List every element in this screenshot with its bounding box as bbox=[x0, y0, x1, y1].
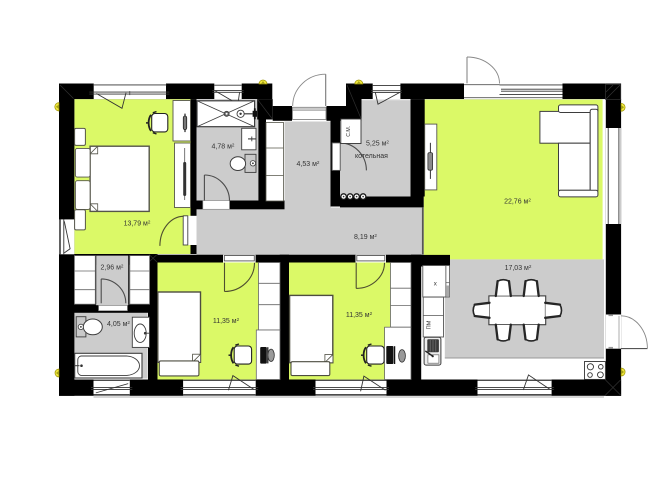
svg-text:5,25 м2: 5,25 м2 bbox=[366, 139, 389, 147]
svg-text:С.М.: С.М. bbox=[346, 126, 352, 137]
svg-text:8,19 м2: 8,19 м2 bbox=[354, 233, 377, 241]
svg-text:4,53 м2: 4,53 м2 bbox=[297, 160, 320, 168]
svg-text:котельная: котельная bbox=[355, 153, 388, 160]
svg-text:11,35 м2: 11,35 м2 bbox=[346, 311, 373, 319]
svg-text:11,35 м2: 11,35 м2 bbox=[213, 317, 240, 325]
svg-text:4,78 м2: 4,78 м2 bbox=[212, 143, 235, 151]
svg-text:22,76 м2: 22,76 м2 bbox=[504, 198, 531, 206]
svg-text:17,03 м2: 17,03 м2 bbox=[505, 264, 532, 272]
svg-text:4,05 м2: 4,05 м2 bbox=[107, 320, 130, 328]
svg-text:13,79 м2: 13,79 м2 bbox=[124, 220, 151, 228]
svg-text:2,96 м2: 2,96 м2 bbox=[101, 264, 124, 272]
svg-text:ПМ: ПМ bbox=[427, 320, 433, 329]
